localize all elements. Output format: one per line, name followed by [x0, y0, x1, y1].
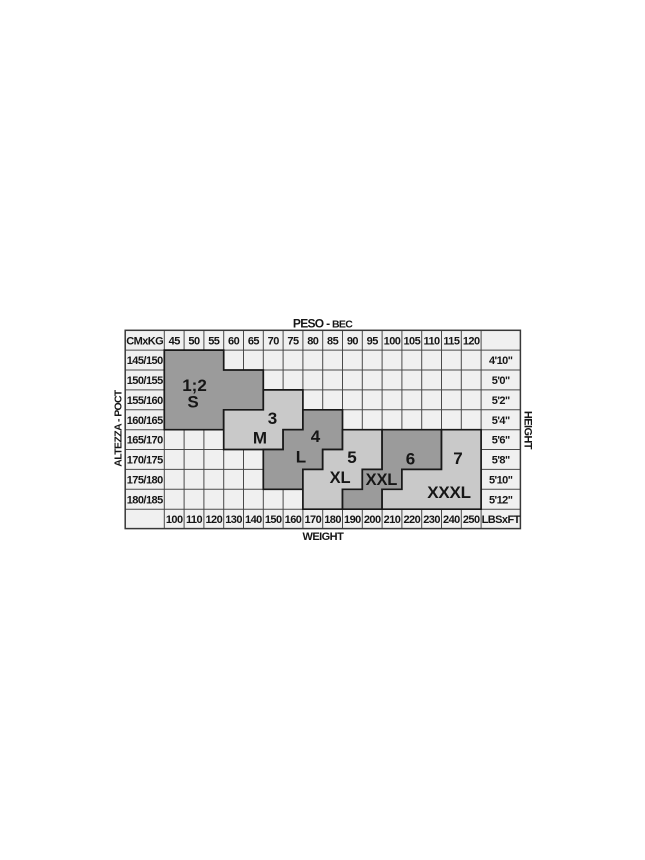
- svg-text:100: 100: [384, 336, 401, 348]
- svg-text:175/180: 175/180: [127, 474, 163, 486]
- svg-text:190: 190: [344, 514, 361, 526]
- svg-text:220: 220: [403, 514, 420, 526]
- svg-text:XXXL: XXXL: [427, 483, 471, 502]
- svg-text:75: 75: [287, 336, 299, 348]
- svg-text:M: M: [253, 429, 267, 448]
- svg-text:100: 100: [166, 514, 183, 526]
- svg-text:110: 110: [186, 514, 203, 526]
- svg-text:5'4": 5'4": [492, 415, 510, 427]
- svg-text:115: 115: [443, 336, 460, 348]
- svg-text:4: 4: [311, 427, 321, 446]
- svg-text:50: 50: [188, 336, 200, 348]
- svg-text:4'10": 4'10": [489, 355, 513, 367]
- svg-text:5'0": 5'0": [492, 375, 510, 387]
- svg-text:240: 240: [443, 514, 460, 526]
- svg-text:170: 170: [304, 514, 321, 526]
- svg-text:85: 85: [327, 336, 339, 348]
- svg-text:90: 90: [347, 336, 359, 348]
- svg-text:PESO - ВЕС: PESO - ВЕС: [293, 317, 353, 331]
- svg-text:HEIGHT: HEIGHT: [522, 411, 534, 450]
- svg-text:155/160: 155/160: [127, 395, 163, 407]
- svg-text:5'10": 5'10": [489, 474, 513, 486]
- svg-text:95: 95: [367, 336, 379, 348]
- svg-text:60: 60: [228, 336, 240, 348]
- svg-text:5'8": 5'8": [492, 455, 510, 467]
- svg-text:70: 70: [268, 336, 280, 348]
- svg-text:ALTEZZA - РОСТ: ALTEZZA - РОСТ: [112, 389, 124, 467]
- svg-text:170/175: 170/175: [127, 455, 163, 467]
- svg-text:130: 130: [225, 514, 242, 526]
- svg-text:7: 7: [453, 449, 462, 468]
- svg-text:5'6": 5'6": [492, 435, 510, 447]
- svg-text:XXL: XXL: [366, 471, 398, 489]
- svg-text:L: L: [296, 448, 306, 467]
- svg-text:180/185: 180/185: [127, 494, 163, 506]
- svg-text:160/165: 160/165: [127, 415, 163, 427]
- svg-text:5'2": 5'2": [492, 395, 510, 407]
- svg-text:80: 80: [307, 336, 319, 348]
- svg-text:210: 210: [384, 514, 401, 526]
- svg-text:5: 5: [347, 448, 356, 467]
- svg-text:XL: XL: [330, 469, 351, 487]
- svg-text:LBSxFT: LBSxFT: [482, 514, 521, 526]
- svg-text:45: 45: [169, 336, 181, 348]
- svg-text:180: 180: [324, 514, 341, 526]
- svg-text:3: 3: [268, 409, 277, 428]
- svg-text:110: 110: [424, 336, 441, 348]
- svg-text:5'12": 5'12": [489, 494, 513, 506]
- svg-text:S: S: [187, 393, 198, 412]
- svg-text:105: 105: [403, 336, 420, 348]
- svg-text:200: 200: [364, 514, 381, 526]
- svg-text:145/150: 145/150: [127, 355, 163, 367]
- svg-text:140: 140: [245, 514, 262, 526]
- svg-text:65: 65: [248, 336, 260, 348]
- svg-text:150: 150: [265, 514, 282, 526]
- svg-text:230: 230: [423, 514, 440, 526]
- svg-text:6: 6: [406, 450, 415, 469]
- svg-text:150/155: 150/155: [127, 375, 163, 387]
- svg-text:CMxKG: CMxKG: [126, 336, 163, 348]
- svg-text:55: 55: [208, 336, 220, 348]
- svg-text:250: 250: [463, 514, 480, 526]
- svg-text:165/170: 165/170: [127, 435, 163, 447]
- svg-text:160: 160: [285, 514, 302, 526]
- svg-text:WEIGHT: WEIGHT: [303, 531, 345, 543]
- svg-text:120: 120: [463, 336, 480, 348]
- svg-text:120: 120: [205, 514, 222, 526]
